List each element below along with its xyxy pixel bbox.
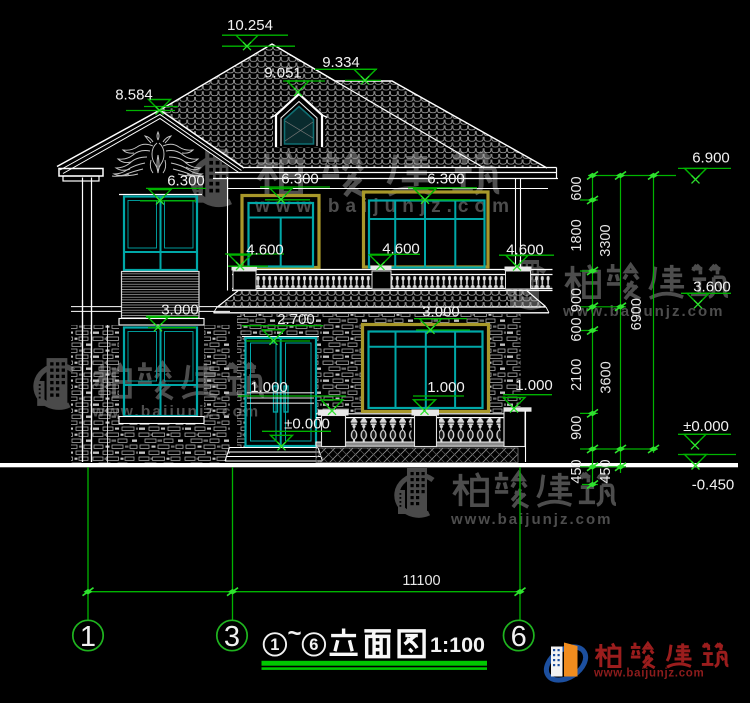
- svg-text:4.600: 4.600: [382, 241, 420, 258]
- svg-text:900: 900: [569, 416, 585, 440]
- svg-text:3600: 3600: [599, 361, 615, 393]
- svg-text:6: 6: [511, 621, 527, 653]
- svg-text:10.254: 10.254: [227, 17, 273, 34]
- svg-text:900: 900: [569, 288, 585, 312]
- svg-text:11100: 11100: [402, 573, 440, 589]
- svg-text:9.334: 9.334: [322, 54, 360, 71]
- svg-text:1.000: 1.000: [250, 379, 288, 396]
- svg-text:1: 1: [80, 621, 96, 653]
- svg-text:6.900: 6.900: [692, 150, 730, 167]
- svg-text:1.000: 1.000: [427, 379, 465, 396]
- svg-text:3: 3: [224, 621, 240, 653]
- svg-text:4.600: 4.600: [246, 242, 284, 259]
- svg-text:3.600: 3.600: [693, 279, 731, 296]
- svg-text:4.600: 4.600: [506, 242, 544, 259]
- svg-text:www.baijunjz.com: www.baijunjz.com: [593, 668, 704, 680]
- svg-text:±0.000: ±0.000: [683, 418, 729, 435]
- svg-text:600: 600: [569, 176, 585, 200]
- svg-text:±0.000: ±0.000: [284, 416, 330, 433]
- svg-text:6.300: 6.300: [167, 173, 205, 190]
- svg-text:450: 450: [598, 459, 614, 483]
- svg-text:1: 1: [270, 636, 279, 654]
- svg-text:6900: 6900: [629, 298, 645, 330]
- svg-text:2.700: 2.700: [277, 311, 315, 328]
- svg-text:6.300: 6.300: [427, 171, 465, 188]
- svg-text:~: ~: [287, 620, 301, 647]
- svg-text:1800: 1800: [569, 219, 585, 251]
- svg-text:3.000: 3.000: [161, 302, 199, 319]
- svg-text:9.051: 9.051: [264, 65, 302, 82]
- svg-text:6: 6: [309, 636, 318, 654]
- svg-text:1:100: 1:100: [430, 633, 485, 657]
- svg-text:www.baijunjz.com: www.baijunjz.com: [254, 196, 515, 217]
- svg-text:6.300: 6.300: [281, 171, 319, 188]
- svg-text:3.000: 3.000: [422, 304, 460, 321]
- svg-text:450: 450: [569, 459, 585, 483]
- svg-text:1.000: 1.000: [515, 377, 553, 394]
- svg-text:-0.450: -0.450: [692, 477, 735, 494]
- svg-text:2100: 2100: [569, 359, 585, 391]
- svg-text:8.584: 8.584: [115, 87, 153, 104]
- svg-text:600: 600: [569, 317, 585, 341]
- svg-text:3300: 3300: [598, 224, 614, 256]
